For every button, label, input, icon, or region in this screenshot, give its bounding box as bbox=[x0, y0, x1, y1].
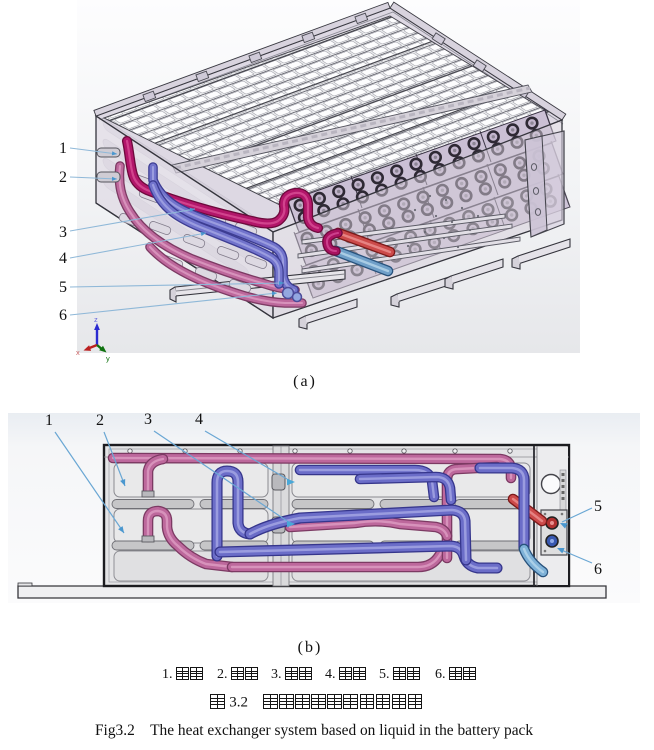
svg-text:1: 1 bbox=[59, 140, 67, 157]
svg-text:6: 6 bbox=[59, 307, 67, 324]
svg-text:(a): (a) bbox=[293, 373, 317, 390]
svg-text:1: 1 bbox=[45, 412, 53, 429]
svg-text:4: 4 bbox=[195, 411, 203, 428]
svg-text:(b): (b) bbox=[298, 639, 323, 656]
svg-text:x: x bbox=[76, 348, 80, 357]
svg-text:4: 4 bbox=[59, 250, 67, 267]
svg-text:z: z bbox=[94, 315, 98, 324]
svg-text:y: y bbox=[106, 354, 110, 363]
svg-text:6: 6 bbox=[594, 561, 602, 578]
svg-text:3: 3 bbox=[59, 224, 67, 241]
svg-text:3: 3 bbox=[144, 411, 152, 428]
svg-text:5: 5 bbox=[59, 279, 67, 296]
svg-text:2: 2 bbox=[59, 169, 67, 186]
svg-text:2: 2 bbox=[96, 412, 104, 429]
svg-text:5: 5 bbox=[594, 498, 602, 515]
